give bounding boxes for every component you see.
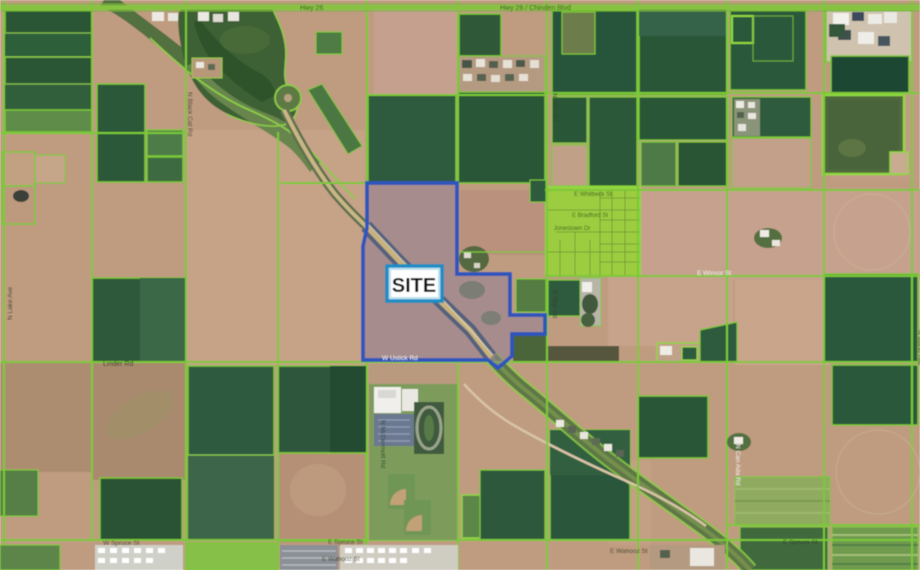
svg-text:Linder Rd: Linder Rd [103, 361, 133, 368]
svg-text:E Wahooz St: E Wahooz St [610, 548, 648, 555]
svg-text:N Lake Ave: N Lake Ave [7, 286, 14, 320]
svg-text:N Black Cat Rd: N Black Cat Rd [186, 92, 193, 137]
svg-text:E Spruce St: E Spruce St [328, 539, 363, 546]
svg-text:Jonestown Dr: Jonestown Dr [554, 226, 591, 232]
svg-text:N Star Rd: N Star Rd [551, 290, 558, 319]
svg-text:W Spruce St: W Spruce St [103, 540, 140, 547]
svg-text:N Star Rd: N Star Rd [551, 93, 558, 122]
svg-text:N Idaho Ave: N Idaho Ave [916, 330, 920, 366]
svg-text:E Wahooz St: E Wahooz St [322, 556, 360, 563]
svg-text:E Whitbeck St: E Whitbeck St [574, 192, 612, 198]
svg-text:N McDermott Rd: N McDermott Rd [379, 420, 386, 469]
svg-text:E Winsor St: E Winsor St [697, 270, 732, 277]
svg-text:Hwy 26 / Chinden Blvd: Hwy 26 / Chinden Blvd [500, 5, 571, 12]
svg-text:E Spruce St: E Spruce St [783, 539, 818, 546]
svg-text:W Ustick Rd: W Ustick Rd [382, 355, 418, 362]
svg-text:E Bradford St: E Bradford St [572, 213, 608, 219]
svg-text:N Can Ada Rd: N Can Ada Rd [734, 444, 741, 486]
svg-text:SITE: SITE [392, 275, 436, 297]
svg-text:Hwy 26: Hwy 26 [300, 5, 323, 12]
